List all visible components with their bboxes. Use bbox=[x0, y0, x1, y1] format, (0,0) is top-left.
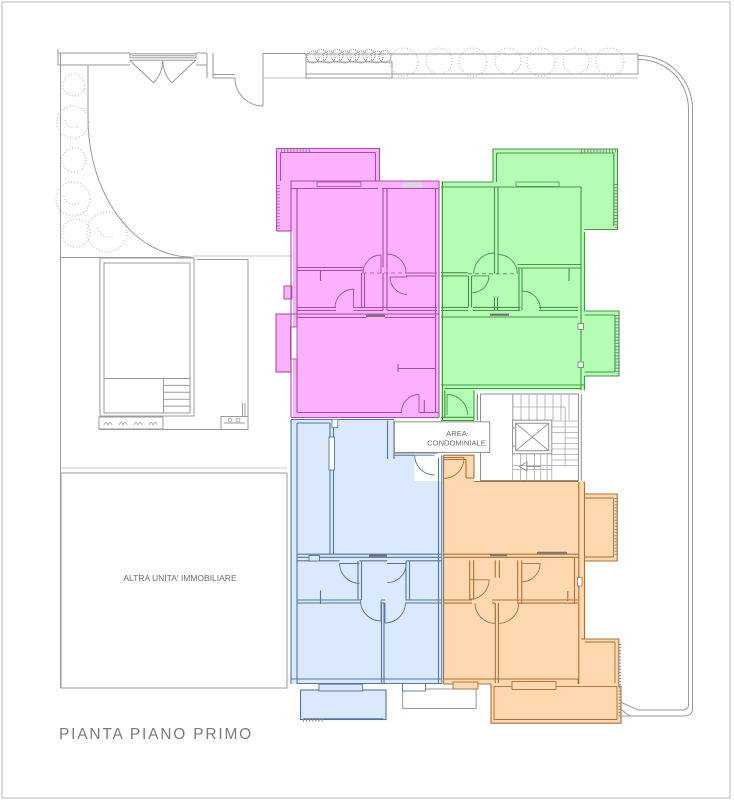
svg-text:AREA: AREA bbox=[446, 429, 468, 438]
svg-text:ALTRA UNITA' IMMOBILIARE: ALTRA UNITA' IMMOBILIARE bbox=[123, 573, 237, 583]
svg-text:PIANTA PIANO PRIMO: PIANTA PIANO PRIMO bbox=[59, 726, 253, 743]
svg-text:CONDOMINIALE: CONDOMINIALE bbox=[427, 438, 486, 447]
